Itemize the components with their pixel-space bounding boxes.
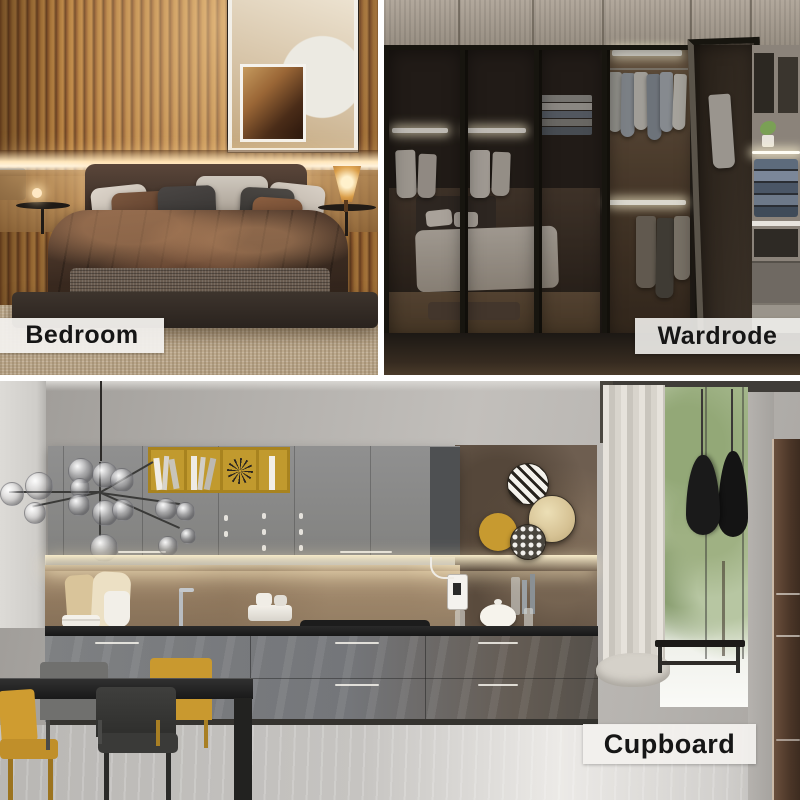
white-jug (104, 591, 130, 627)
drawer-handle[interactable] (335, 642, 379, 644)
dining-chair-dark-front[interactable] (96, 687, 176, 737)
cupboard-label-text: Cupboard (604, 729, 736, 760)
bedroom-label: Bedroom (0, 318, 164, 353)
drawer-handle[interactable] (95, 642, 139, 644)
pendant-cord (701, 389, 703, 459)
nightstand-left-leg (41, 208, 44, 234)
tall-brown-cabinet[interactable] (772, 439, 800, 800)
wardrobe-glass-door[interactable] (602, 45, 700, 347)
plant-pot (762, 135, 774, 147)
chandelier-globe (158, 536, 178, 556)
wardrobe-glass-door[interactable] (460, 45, 542, 345)
cabinet-knob[interactable] (262, 529, 266, 535)
pendant-cord (731, 389, 733, 453)
shelf-dark-gear (754, 229, 798, 257)
chandelier-globe (110, 468, 134, 492)
hanging-shirt (708, 94, 735, 169)
open-shelf-column (752, 45, 800, 333)
cabinet-line (776, 635, 800, 637)
bench-leg (658, 647, 662, 673)
drawer-seam (425, 636, 426, 722)
chair-leg (98, 720, 102, 744)
chandelier-globe (25, 472, 53, 500)
chandelier-globe (68, 494, 90, 516)
cabinet-knob[interactable] (262, 513, 266, 519)
shelf-box-item (754, 53, 774, 113)
wall-decor-honeycomb-circle (510, 524, 546, 560)
interior-collage: { "page": {"type": "interior-design-phot… (0, 0, 800, 800)
window-greenery (660, 387, 748, 707)
wardrobe-photo: Wardrode (384, 0, 800, 375)
bench-shelf (660, 661, 738, 665)
window-bench (655, 640, 745, 647)
chair-leg (48, 759, 53, 800)
cupboard-label: Cupboard (583, 724, 756, 764)
bedroom-label-text: Bedroom (25, 321, 138, 350)
drawer-front (752, 261, 800, 303)
chair-leg (166, 753, 171, 800)
cabinet-line (776, 593, 800, 595)
chandelier-globe (112, 499, 134, 521)
shelf-led (752, 151, 800, 154)
under-cabinet-glow (45, 555, 597, 571)
chandelier-globe (0, 482, 24, 506)
faucet (179, 590, 183, 626)
chair-leg (46, 720, 50, 750)
plant-leaves (760, 121, 776, 135)
chair-seat (98, 733, 178, 753)
cupboard-photo: Cupboard (0, 381, 800, 800)
wood-seam (532, 0, 534, 45)
shelf-divider (220, 450, 223, 490)
teapot-lid (494, 599, 502, 605)
cabinet-knob[interactable] (224, 531, 228, 537)
drawer-handle[interactable] (478, 642, 518, 644)
wood-seam (602, 0, 604, 45)
upper-cabinet-dark-end (430, 447, 460, 557)
books (191, 456, 197, 490)
cabinet-knob[interactable] (299, 529, 303, 535)
books (204, 458, 217, 491)
cabinet-knob[interactable] (224, 515, 228, 521)
table-leg (234, 698, 252, 800)
faucet-spout (179, 588, 194, 592)
wardrobe-label: Wardrode (635, 318, 800, 354)
cabinet-seam (370, 446, 371, 556)
chair-leg (8, 759, 13, 800)
cabinet-line (776, 739, 800, 741)
cabinet-knob[interactable] (262, 545, 266, 551)
drawer-handle[interactable] (478, 684, 518, 686)
table-lamp-right-stem (344, 200, 348, 212)
dining-chair-yellow-front[interactable] (0, 689, 38, 743)
shelf-box-item (778, 57, 798, 113)
chandelier-globe (176, 502, 195, 521)
small-pot (274, 595, 287, 606)
cabinet-knob[interactable] (299, 513, 303, 519)
switch-display (453, 583, 461, 595)
sheer-curtain (603, 385, 665, 675)
shelf-divider (256, 450, 259, 490)
cabinet-seam (294, 446, 295, 556)
shelf-board (752, 221, 800, 226)
nightstand-right-leg (345, 210, 348, 236)
folded-jeans-stack (754, 159, 798, 217)
books (269, 456, 275, 490)
light-switch[interactable] (447, 574, 468, 610)
chair-leg (156, 720, 160, 746)
chair-leg (204, 720, 208, 748)
wardrobe-glass-door[interactable] (534, 45, 610, 345)
open-shelf-mustard (148, 447, 290, 493)
wood-seam (458, 0, 460, 45)
chandelier-globe (180, 528, 196, 544)
table-lamp-left (32, 188, 42, 198)
wardrobe-label-text: Wardrode (658, 322, 778, 351)
chair-leg (104, 753, 109, 800)
chandelier-cord (100, 381, 102, 461)
drawer-handle[interactable] (335, 684, 379, 686)
chandelier-globe (155, 498, 177, 520)
cabinet-knob[interactable] (299, 545, 303, 551)
chandelier-globe (24, 502, 46, 524)
bench-leg (736, 647, 740, 673)
shelf-divider (184, 450, 187, 490)
bedroom-photo: Bedroom (0, 0, 378, 375)
sunburst-clock (227, 458, 253, 484)
dish-set (248, 605, 292, 621)
books (168, 459, 179, 490)
cabinet-handle[interactable] (340, 551, 392, 553)
cabinet-seam (142, 446, 143, 556)
teapot (480, 604, 516, 628)
wardrobe-glass-door[interactable] (384, 45, 468, 345)
wall-art-inner-picture (240, 64, 306, 142)
small-pot (256, 593, 272, 606)
